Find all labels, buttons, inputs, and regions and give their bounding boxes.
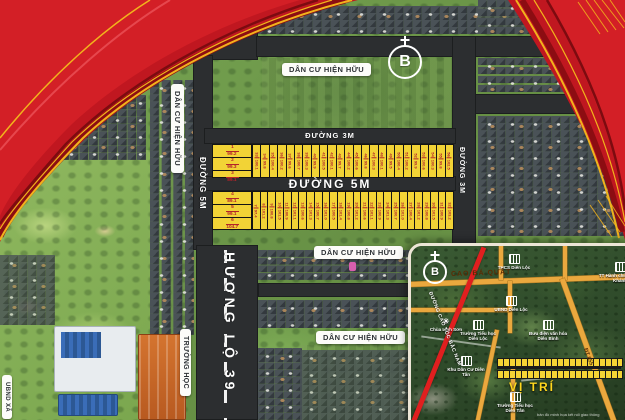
residential-block — [478, 58, 625, 92]
plot-cell: 26 101.0 — [399, 192, 407, 229]
plot-area: 100.1 — [380, 160, 385, 170]
plot-number: 9 — [269, 203, 274, 205]
label-school: TRƯỜNG HỌC — [180, 329, 191, 396]
plot-cell: 28 101.2 — [414, 192, 422, 229]
fraction-bar — [347, 207, 352, 208]
plot-cell: 43 99.7 — [336, 145, 344, 177]
fraction-bar — [430, 158, 435, 159]
plot-cell: 42 100.1 — [327, 145, 335, 177]
fraction-bar — [362, 207, 367, 208]
plot-area: 100.1 — [330, 160, 335, 170]
plot-number: 38 — [296, 152, 301, 156]
poi-truong-dien-tan: Trường Tiểu học Diên Tân — [492, 392, 538, 414]
plot-cell: 48 100.1 — [378, 145, 386, 177]
plot-number: 24 — [385, 202, 390, 206]
plot-cell: 2 99.3 — [213, 158, 251, 171]
plot-area: 99.3 — [227, 165, 236, 170]
plot-area: 100.8 — [269, 208, 274, 218]
residential-block — [60, 95, 146, 160]
plot-number: 43 — [338, 153, 343, 157]
plot-area: 99.1 — [227, 212, 236, 217]
plot-area: 100.6 — [355, 160, 360, 170]
plot-cell: 40 99.9 — [311, 145, 319, 177]
plot-cell: 50 100.4 — [394, 145, 402, 177]
plot-cell: 51 100.2 — [403, 145, 411, 177]
plot-number: 18 — [339, 202, 344, 206]
road-right-horizontal — [474, 94, 625, 114]
plot-area: 99.6 — [288, 161, 293, 169]
plot-number: 56 — [447, 152, 452, 156]
plot-area: 100.3 — [304, 160, 309, 170]
fraction-bar — [293, 207, 298, 208]
plot-area: 99.9 — [413, 161, 418, 169]
plot-cell: 53 100.6 — [420, 145, 428, 177]
plot-number: 44 — [346, 152, 351, 156]
fraction-bar — [279, 158, 284, 159]
plot-cell: 21 100.6 — [360, 192, 368, 229]
fraction-bar — [300, 207, 305, 208]
plot-row-bottom: 4 89.1 5 99.1 6 104.7 — [212, 191, 454, 230]
plot-area: 89.1 — [227, 199, 236, 204]
plot-area: 100.3 — [430, 160, 435, 170]
plot-area: 97.4 — [254, 209, 259, 217]
label-existing-residential-top: DÂN CƯ HIỆN HỮU — [282, 63, 371, 76]
plot-cell: 44 100.2 — [344, 145, 352, 177]
plot-area: 100.4 — [271, 160, 276, 170]
fraction-bar — [405, 158, 410, 159]
plot-cell: 5 99.1 — [213, 205, 251, 218]
plot-cells-bottom: 7 97.4 8 101.2 9 — [252, 192, 453, 229]
plot-cell: 49 99.5 — [386, 145, 394, 177]
fraction-bar — [304, 158, 309, 159]
solar-roof — [61, 332, 101, 358]
plot-number: 17 — [331, 202, 336, 206]
residential-block — [300, 350, 408, 420]
plot-cell: 45 100.6 — [353, 145, 361, 177]
fraction-bar — [354, 207, 359, 208]
plot-area: 99.8 — [263, 161, 268, 169]
fraction-bar — [338, 159, 343, 160]
label-commune-office: UBND XÃ — [2, 375, 12, 419]
plot-number: 47 — [371, 152, 376, 156]
plot-cell: 1 99.2 — [213, 145, 251, 158]
fraction-bar — [288, 159, 293, 160]
plot-area: 100.8 — [424, 209, 429, 219]
project-road — [497, 366, 621, 369]
plot-cell: 36 100.2 — [277, 145, 285, 177]
building-icon — [506, 296, 517, 306]
plot-number: 39 — [304, 152, 309, 156]
plot-cell: 12 101.1 — [291, 192, 299, 229]
poi-label: TT Hành chính Diên Khánh — [597, 273, 625, 284]
plot-number: 42 — [330, 152, 335, 156]
plot-area: 99.8 — [438, 161, 443, 169]
plot-number: 54 — [430, 152, 435, 156]
building-icon — [543, 320, 554, 330]
plot-number: 50 — [397, 152, 402, 156]
greenhouse-building — [90, 56, 136, 88]
plot-cell: 41 100.5 — [319, 145, 327, 177]
plot-area: 100.6 — [362, 209, 367, 219]
plot-area: 99.5 — [388, 161, 393, 169]
fraction-bar — [409, 207, 414, 208]
plot-area: 101.2 — [416, 209, 421, 219]
plot-cell: 20 101.2 — [353, 192, 361, 229]
fraction-bar — [271, 158, 276, 159]
plot-area: 101.1 — [293, 209, 298, 219]
plot-number: 37 — [288, 153, 293, 157]
poi-label: Trường Tiểu học Diên Lộc — [455, 331, 501, 342]
fraction-bar — [308, 207, 313, 208]
plot-area: 100.8 — [347, 209, 352, 219]
plot-cell: 8 101.2 — [260, 192, 268, 229]
plot-area: 101.3 — [385, 209, 390, 219]
pink-roof-house — [349, 262, 356, 271]
plot-row-top: 1 99.2 2 99.3 3 89.1 — [212, 144, 454, 178]
plot-number: 5 — [231, 205, 234, 210]
location-inset-map: ĐƯỜNG CAO TỐC BẮC NAM CAO BÁ QUÁT ĐT 655… — [408, 243, 625, 420]
plot-cell: 25 100.7 — [391, 192, 399, 229]
fraction-bar — [447, 207, 452, 208]
fraction-bar — [438, 159, 443, 160]
plot-number: 14 — [308, 202, 313, 206]
inset-watermark: bản đồ minh họa kết nối giao thông — [537, 412, 600, 417]
poi-thcs: THCS Diên Lộc — [491, 254, 537, 270]
residential-block — [0, 255, 55, 325]
fraction-bar — [439, 207, 444, 208]
plot-area: 101.0 — [323, 209, 328, 219]
fraction-bar — [339, 207, 344, 208]
plot-cell: 23 100.9 — [376, 192, 384, 229]
poi-label: Trường Tiểu học Diên Tân — [492, 403, 538, 414]
poi-buu-dien: Bưu điện văn hóa Diên Bình — [525, 320, 571, 342]
poi-khu-dan-cu: Khu Dân Cư Diên Tân — [443, 356, 489, 378]
plot-cell: 37 99.6 — [286, 145, 294, 177]
fraction-bar — [262, 206, 267, 207]
plot-area: 100.9 — [378, 209, 383, 219]
plot-cell: 33 100.1 — [252, 145, 260, 177]
plot-cell: 4 89.1 — [213, 192, 251, 205]
plot-number: 34 — [263, 153, 268, 157]
plot-cell: 52 99.9 — [411, 145, 419, 177]
plot-area: 100.6 — [422, 160, 427, 170]
poi-label: Bưu điện văn hóa Diên Bình — [525, 331, 571, 342]
plot-area: 101.2 — [262, 208, 267, 218]
plot-area: 100.7 — [316, 209, 321, 219]
fraction-bar — [401, 207, 406, 208]
plot-area: 100.7 — [296, 160, 301, 170]
fraction-bar — [363, 159, 368, 160]
plot-area: 101.1 — [370, 209, 375, 219]
fraction-bar — [321, 158, 326, 159]
plot-cell: 9 100.8 — [267, 192, 275, 229]
plot-cells-top: 33 100.1 34 99.8 35 — [252, 145, 453, 177]
plot-number: 3 — [231, 171, 234, 176]
poi-label: UBND Diên Lộc — [494, 307, 527, 312]
plot-area: 100.2 — [346, 160, 351, 170]
plot-cell: 6 104.7 — [213, 218, 251, 230]
plot-number: 7 — [254, 204, 259, 206]
plot-area: 101.0 — [401, 209, 406, 219]
plot-number: 32 — [447, 202, 452, 206]
plot-cell: 55 99.8 — [436, 145, 444, 177]
plot-number: 53 — [422, 152, 427, 156]
fraction-bar — [371, 158, 376, 159]
poi-tt-hanh-chinh: TT Hành chính Diên Khánh — [597, 262, 625, 284]
fraction-bar — [330, 158, 335, 159]
plot-number: 52 — [413, 153, 418, 157]
plot-number: 35 — [271, 152, 276, 156]
plot-area: 100.2 — [405, 160, 410, 170]
plot-number: 11 — [285, 202, 290, 206]
fraction-bar — [254, 158, 259, 159]
plot-number: 27 — [409, 202, 414, 206]
road-label-duong-3m-top: ĐƯỜNG 3M — [204, 131, 456, 140]
plot-number: 10 — [277, 202, 282, 206]
plot-area: 100.7 — [393, 209, 398, 219]
plot-number: 41 — [321, 152, 326, 156]
compass-letter: B — [431, 266, 439, 278]
fraction-bar — [416, 207, 421, 208]
fraction-bar — [355, 158, 360, 159]
fraction-bar — [331, 207, 336, 208]
roof-ridges — [139, 335, 185, 419]
inset-road — [563, 246, 567, 280]
plot-cell: 18 101.4 — [337, 192, 345, 229]
fraction-bar — [424, 207, 429, 208]
plot-cell: 30 101.5 — [430, 192, 438, 229]
plot-number: 21 — [362, 202, 367, 206]
plot-area: 99.8 — [363, 161, 368, 169]
plot-cell: 54 100.3 — [428, 145, 436, 177]
fraction-bar — [397, 158, 402, 159]
plot-cell: 31 100.9 — [438, 192, 446, 229]
fraction-bar — [370, 207, 375, 208]
plot-cell: 10 101.5 — [275, 192, 283, 229]
fraction-bar — [285, 207, 290, 208]
plot-area: 100.5 — [321, 160, 326, 170]
site-plan-poster: HƯƠNG LỘ 39 ĐƯỜNG 5M ĐƯỜNG 3M ĐƯỜNG 3M Đ… — [0, 0, 625, 420]
plot-area: 100.2 — [279, 160, 284, 170]
road-5m-service — [193, 55, 213, 250]
plot-number: 12 — [293, 202, 298, 206]
plot-block-1-3: 1 99.2 2 99.3 3 89.1 — [213, 145, 252, 177]
plot-number: 49 — [388, 153, 393, 157]
poi-ubnd: UBND Diên Lộc — [488, 296, 534, 312]
plot-area: 101.5 — [277, 209, 282, 219]
plot-cell: 46 99.8 — [361, 145, 369, 177]
plot-number: 20 — [354, 202, 359, 206]
plot-number: 31 — [439, 202, 444, 206]
plot-area: 100.4 — [409, 209, 414, 219]
plot-number: 33 — [254, 152, 259, 156]
plot-cell: 34 99.8 — [260, 145, 268, 177]
plot-number: 46 — [363, 153, 368, 157]
plot-number: 4 — [231, 192, 234, 197]
road-huong-lo-39-top — [196, 0, 258, 60]
fraction-bar — [447, 158, 452, 159]
plot-number: 13 — [300, 202, 305, 206]
fraction-bar — [296, 158, 301, 159]
location-label: VỊ TRÍ — [509, 380, 555, 394]
fraction-bar — [269, 206, 274, 207]
plot-number: 15 — [316, 202, 321, 206]
plot-number: 28 — [416, 202, 421, 206]
fraction-bar — [254, 207, 259, 208]
plot-cell: 11 100.9 — [283, 192, 291, 229]
plot-number: 30 — [432, 202, 437, 206]
plot-area: 100.5 — [331, 209, 336, 219]
plot-area: 100.3 — [371, 160, 376, 170]
commune-office-building — [54, 326, 136, 392]
label-existing-residential-left: DÂN CƯ HIỆN HỮU — [171, 84, 184, 173]
plot-area: 104.7 — [226, 225, 238, 230]
plot-cell: 47 100.3 — [369, 145, 377, 177]
plot-cell: 15 100.7 — [314, 192, 322, 229]
fraction-bar — [413, 159, 418, 160]
plot-cell: 19 100.8 — [345, 192, 353, 229]
solar-roof-building — [58, 394, 118, 416]
fraction-bar — [393, 207, 398, 208]
plot-number: 40 — [313, 153, 318, 157]
fraction-bar — [323, 207, 328, 208]
fraction-bar — [378, 207, 383, 208]
plot-cell: 16 101.0 — [322, 192, 330, 229]
plot-area: 100.1 — [254, 160, 259, 170]
project-plot-strip — [497, 370, 623, 379]
building-icon — [509, 254, 520, 264]
plot-number: 55 — [438, 153, 443, 157]
road-centerline — [224, 2, 227, 56]
fraction-bar — [263, 159, 268, 160]
fraction-bar — [380, 158, 385, 159]
road-label-duong-3m-right: ĐƯỜNG 3M — [458, 147, 465, 194]
plot-block-4-6: 4 89.1 5 99.1 6 104.7 — [213, 192, 252, 229]
fraction-bar — [277, 207, 282, 208]
plot-area: 101.5 — [432, 209, 437, 219]
plot-area: 100.6 — [300, 209, 305, 219]
plot-cell: 24 101.3 — [383, 192, 391, 229]
plot-number: 48 — [380, 152, 385, 156]
building-icon — [473, 320, 484, 330]
residential-block — [478, 116, 625, 236]
plot-cell: 13 100.6 — [298, 192, 306, 229]
plot-number: 36 — [279, 152, 284, 156]
plot-cell: 17 100.5 — [329, 192, 337, 229]
plot-number: 16 — [323, 202, 328, 206]
plot-cell: 56 102.5 — [445, 145, 453, 177]
plot-area: 100.9 — [439, 209, 444, 219]
building-icon — [615, 262, 625, 272]
residential-block — [478, 0, 625, 34]
plot-number: 45 — [355, 152, 360, 156]
fraction-bar — [316, 207, 321, 208]
plot-cell: 35 100.4 — [269, 145, 277, 177]
fraction-bar — [388, 159, 393, 160]
fraction-bar — [422, 158, 427, 159]
plot-cell: 27 100.4 — [407, 192, 415, 229]
plot-area: 99.2 — [227, 152, 236, 157]
plot-number: 22 — [370, 202, 375, 206]
label-existing-residential-mid: DÂN CƯ HIỆN HỮU — [314, 246, 403, 259]
plot-area: 101.4 — [339, 209, 344, 219]
school-building — [138, 334, 186, 420]
plot-area: 99.7 — [338, 161, 343, 169]
plot-area: 100.4 — [397, 160, 402, 170]
plot-number: 6 — [231, 218, 234, 223]
plot-area: 101.2 — [354, 209, 359, 219]
plot-number: 8 — [262, 203, 267, 205]
plot-number: 19 — [347, 202, 352, 206]
plot-area: 102.5 — [447, 160, 452, 170]
plot-cell: 22 101.1 — [368, 192, 376, 229]
fraction-bar — [385, 207, 390, 208]
plot-cell: 14 101.3 — [306, 192, 314, 229]
plot-number: 23 — [378, 202, 383, 206]
plot-number: 26 — [401, 202, 406, 206]
plot-cell: 7 97.4 — [252, 192, 260, 229]
plot-number: 2 — [231, 158, 234, 163]
road-label-duong-5m-main: ĐƯỜNG 5M — [204, 177, 456, 191]
plot-cell: 39 100.3 — [302, 145, 310, 177]
plot-area: 99.9 — [313, 161, 318, 169]
fraction-bar — [432, 207, 437, 208]
fraction-bar — [346, 158, 351, 159]
plot-area: 103.2 — [447, 209, 452, 219]
north-compass-icon: B — [388, 45, 422, 79]
plot-area: 101.3 — [308, 209, 313, 219]
plot-cell: 32 103.2 — [445, 192, 453, 229]
plot-cell: 29 100.8 — [422, 192, 430, 229]
plot-number: 1 — [231, 145, 234, 150]
inset-compass-icon: B — [423, 260, 447, 284]
poi-label: Khu Dân Cư Diên Tân — [443, 367, 489, 378]
plot-area: 100.9 — [285, 209, 290, 219]
label-existing-residential-bottom: DÂN CƯ HIỆN HỮU — [316, 331, 405, 344]
road-label-huong-lo-39: HƯƠNG LỘ 39 — [222, 252, 238, 393]
fraction-bar — [313, 159, 318, 160]
plot-number: 51 — [405, 152, 410, 156]
compass-letter: B — [399, 53, 411, 71]
plot-number: 25 — [393, 202, 398, 206]
plot-number: 29 — [424, 202, 429, 206]
plot-cell: 38 100.7 — [294, 145, 302, 177]
